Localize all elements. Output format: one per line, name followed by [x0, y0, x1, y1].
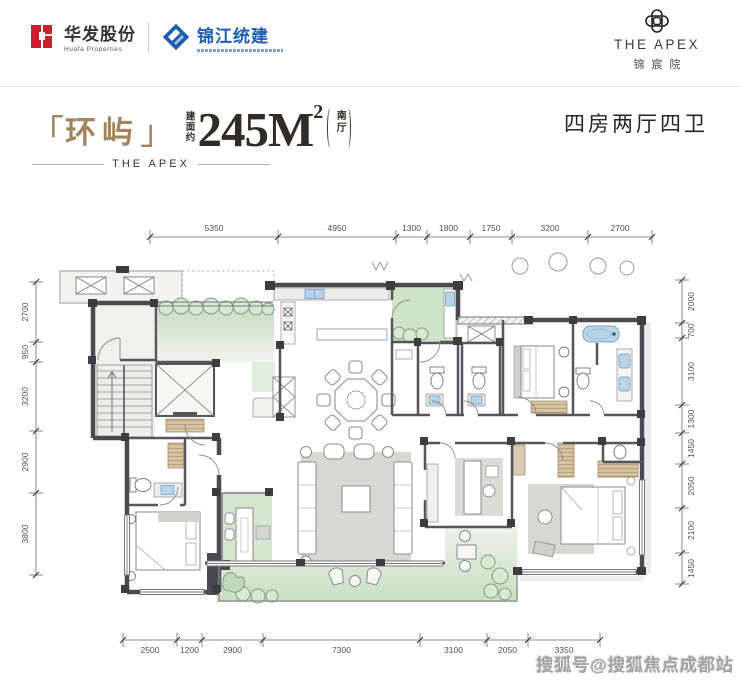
jinjiang-logo: 锦江统建 — [161, 22, 283, 52]
dim-label: 2000 — [686, 292, 696, 311]
dim-label: 2900 — [223, 645, 242, 655]
dim-label: 3200 — [20, 387, 30, 406]
huafa-logo: 华发股份 Huafa Properties — [30, 20, 136, 53]
plan-title: 「 环屿 」 建面约 245M2 南厅 — [30, 104, 351, 151]
dim-label: 1300 — [402, 223, 421, 233]
area-label: 建面约 — [184, 111, 194, 147]
dim-label: 2050 — [498, 645, 517, 655]
area-value: 245M2 — [198, 104, 324, 151]
dim-label: 1750 — [482, 223, 501, 233]
subline-text: THE APEX — [112, 158, 190, 170]
bath-a — [396, 350, 444, 406]
bar-island — [236, 508, 253, 562]
sink — [161, 486, 174, 495]
stool — [225, 513, 234, 524]
desk-chair — [483, 485, 495, 497]
dining-table — [317, 361, 395, 439]
layout-spec: 四房两厅四卫 — [564, 108, 708, 138]
poster-page: 华发股份 Huafa Properties 锦江统建 — [0, 0, 740, 683]
huafa-logo-icon — [30, 23, 57, 50]
jinjiang-subtext-bar — [197, 49, 283, 52]
plan-name: 环屿 — [64, 115, 140, 151]
subline-rule-right — [198, 164, 270, 165]
entry-garden-cabinet — [444, 289, 456, 338]
side-table — [383, 447, 394, 458]
dim-label: 700 — [686, 323, 696, 337]
bath-b — [468, 367, 486, 406]
dim-label: 2700 — [20, 302, 30, 321]
dim-label: 2900 — [20, 452, 30, 471]
shadow-bottom — [520, 576, 644, 581]
armchair — [324, 444, 344, 459]
dim-label: 3800 — [20, 524, 30, 543]
header: 华发股份 Huafa Properties 锦江统建 — [0, 0, 740, 86]
dim-label: 4950 — [328, 223, 347, 233]
toilet — [577, 373, 589, 389]
lounge-chair — [538, 510, 552, 524]
island-counter — [317, 329, 387, 340]
toilet — [473, 373, 485, 389]
toilet — [135, 479, 151, 492]
bookshelf — [427, 464, 438, 522]
bench — [531, 401, 567, 413]
jinjiang-name-cn: 锦江统建 — [197, 22, 283, 47]
bedroom-east — [514, 346, 569, 413]
dim-label: 3100 — [686, 362, 696, 381]
bracket-close: 」 — [140, 117, 174, 151]
dim-label: 1300 — [686, 409, 696, 428]
dim-label: 950 — [20, 345, 30, 359]
wardrobe — [558, 443, 574, 477]
master-bath — [576, 326, 632, 401]
apex-brand: THE APEX 锦宸院 — [602, 8, 712, 72]
powder-room — [130, 478, 182, 497]
huafa-name-cn: 华发股份 — [64, 20, 136, 45]
study — [427, 458, 503, 522]
toilet — [614, 445, 626, 459]
tag-paren-right — [345, 108, 351, 148]
dim-label: 1450 — [686, 439, 696, 458]
logo-divider — [148, 22, 149, 52]
dim-label: 2500 — [141, 645, 160, 655]
jinjiang-logo-icon — [161, 22, 191, 52]
dim-label: 1450 — [686, 559, 696, 578]
hall-shaft — [468, 326, 495, 342]
coffee-table — [342, 486, 370, 512]
armchair — [354, 444, 374, 459]
subline-rule-left — [32, 164, 104, 165]
toilet — [431, 373, 443, 389]
side-table — [301, 447, 312, 458]
outside-trees — [372, 253, 634, 281]
wardrobe — [598, 461, 638, 477]
apex-knot-icon — [644, 8, 670, 34]
dim-label: 2100 — [686, 521, 696, 540]
shadow-right — [645, 322, 651, 574]
closet-cabinet — [513, 445, 525, 475]
dim-label: 3100 — [444, 645, 463, 655]
floorplan: 5350495013001800175032002700250012002900… — [0, 215, 740, 665]
master-bedroom — [513, 443, 638, 557]
desk — [464, 461, 481, 514]
dim-label: 5350 — [205, 223, 224, 233]
dim-label: 2700 — [611, 223, 630, 233]
dim-label: 1200 — [180, 645, 199, 655]
insulated-wall — [458, 317, 532, 324]
tag-text: 南厅 — [333, 108, 345, 148]
huafa-name-en: Huafa Properties — [64, 46, 136, 53]
apex-name-cn: 锦宸院 — [602, 56, 712, 72]
staircase — [97, 365, 152, 437]
closet — [168, 443, 184, 468]
bedroom-southwest — [127, 443, 201, 581]
canopy — [60, 266, 274, 303]
watermark: 搜狐号@搜狐焦点成都站 — [536, 651, 734, 676]
pantry-shaft — [273, 377, 295, 417]
title-row: 「 环屿 」 建面约 245M2 南厅 THE APEX 四房两厅四卫 — [0, 98, 740, 188]
dim-label: 3200 — [541, 223, 560, 233]
stool — [225, 529, 234, 540]
apex-name-en: THE APEX — [602, 37, 712, 52]
developer-logos: 华发股份 Huafa Properties 锦江统建 — [30, 20, 283, 53]
elevator — [156, 364, 214, 417]
area-tag: 南厅 — [327, 108, 351, 148]
sink — [471, 396, 482, 404]
brand-subline: THE APEX — [32, 158, 270, 170]
header-divider — [0, 86, 740, 87]
dim-label: 7300 — [332, 645, 351, 655]
living-room — [298, 444, 412, 566]
bracket-open: 「 — [30, 117, 64, 151]
dim-label: 1800 — [439, 223, 458, 233]
dim-label: 2050 — [686, 476, 696, 495]
